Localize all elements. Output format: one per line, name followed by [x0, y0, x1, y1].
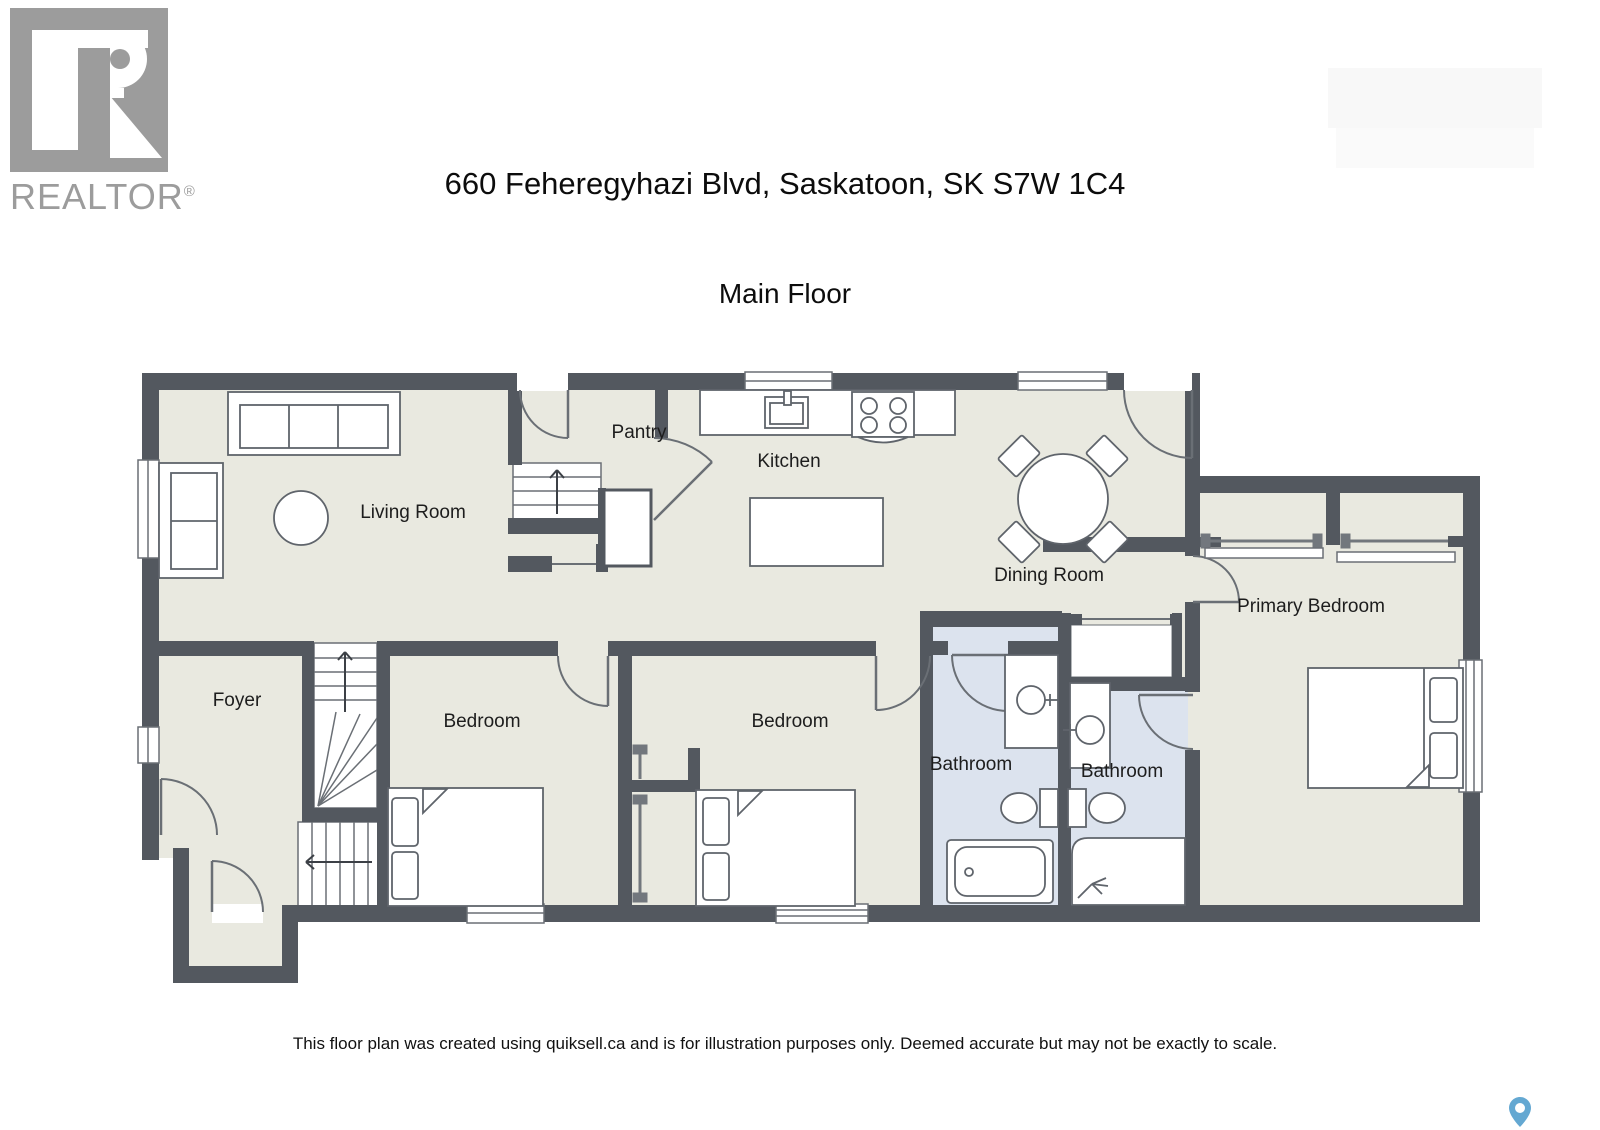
pillow-icon: [1430, 678, 1457, 722]
loveseat-icon: [159, 463, 223, 578]
room-label-bathroom-main: Bathroom: [930, 754, 1012, 775]
kitchen-counter-icon: [700, 390, 955, 435]
sofa-icon: [228, 392, 400, 455]
window-icon: [1018, 372, 1107, 390]
pillow-icon: [392, 798, 418, 846]
pantry-cabinet-icon: [604, 490, 651, 566]
room-label-pantry: Pantry: [612, 422, 667, 443]
window-icon: [745, 372, 832, 390]
bed-icon: [1308, 668, 1463, 788]
room-label-dining-room: Dining Room: [994, 565, 1104, 586]
room-label-kitchen: Kitchen: [757, 451, 820, 472]
room-label-bedroom-middle: Bedroom: [751, 711, 828, 732]
pillow-icon: [703, 853, 729, 900]
disclaimer-text: This floor plan was created using quikse…: [0, 1034, 1570, 1054]
hall-closet: [1071, 625, 1172, 677]
room-label-living-room: Living Room: [360, 502, 466, 523]
room-label-foyer: Foyer: [213, 690, 262, 711]
vanity-sink-icon: [1063, 683, 1110, 768]
bed-icon: [388, 788, 543, 906]
window-icon: [138, 460, 159, 558]
pillow-icon: [392, 852, 418, 899]
room-label-primary-bedroom: Primary Bedroom: [1237, 596, 1385, 617]
pillow-icon: [703, 798, 729, 845]
floor-plan-drawing: Living Room Pantry Kitchen Dining Room P…: [0, 0, 1600, 1130]
stove-icon: [852, 392, 914, 443]
shower-icon: [1072, 838, 1185, 905]
vanity-sink-icon: [1005, 655, 1058, 748]
dining-set-icon: [998, 435, 1128, 563]
stairs-up-icon: [513, 463, 601, 519]
kitchen-sink-icon: [765, 391, 808, 428]
floor-plan-page: REALTOR® 660 Feheregyhazi Blvd, Saskatoo…: [0, 0, 1600, 1130]
round-table-icon: [274, 491, 328, 545]
dining-table-icon: [1018, 454, 1108, 544]
bathtub-icon: [947, 840, 1053, 903]
room-label-bedroom-left: Bedroom: [443, 711, 520, 732]
room-label-bathroom-ensuite: Bathroom: [1081, 761, 1163, 782]
map-pin-icon[interactable]: [1504, 1094, 1536, 1130]
bed-icon: [696, 790, 855, 906]
pillow-icon: [1430, 733, 1457, 778]
kitchen-island-icon: [750, 498, 883, 566]
window-icon: [138, 727, 159, 763]
